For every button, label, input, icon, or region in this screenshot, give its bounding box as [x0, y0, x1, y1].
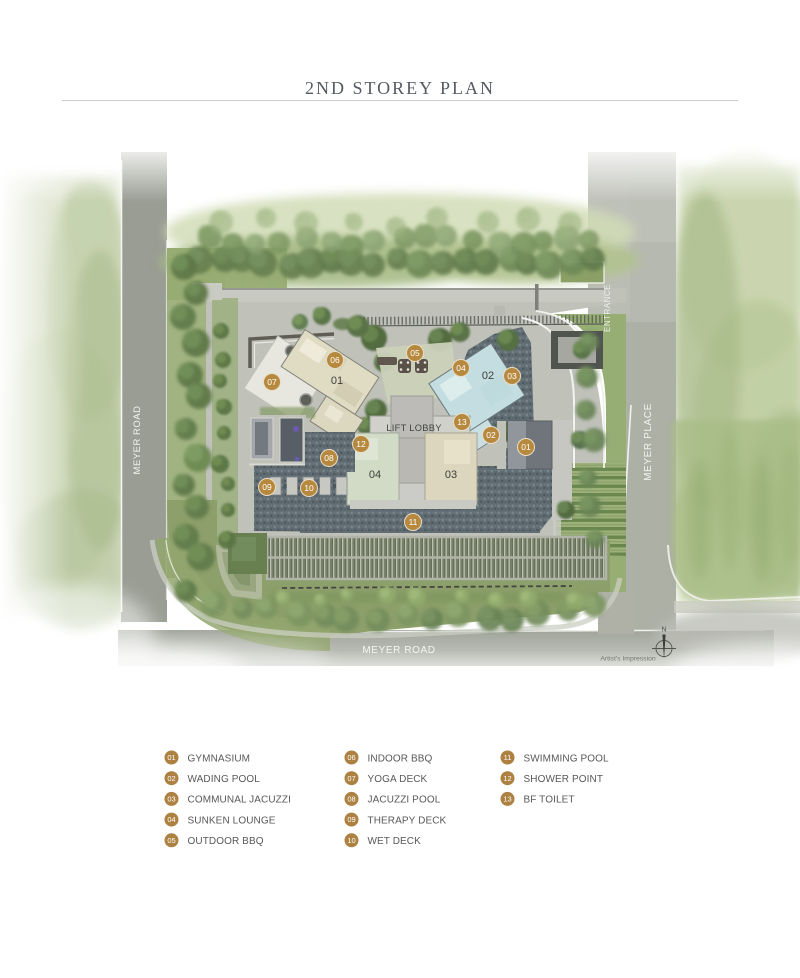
- svg-text:SUNKEN LOUNGE: SUNKEN LOUNGE: [188, 815, 276, 826]
- svg-text:01: 01: [167, 753, 175, 762]
- svg-text:10: 10: [347, 836, 355, 845]
- svg-text:09: 09: [347, 815, 355, 824]
- svg-text:02: 02: [486, 430, 496, 440]
- svg-text:13: 13: [503, 795, 511, 804]
- svg-text:LIFT LOBBY: LIFT LOBBY: [386, 423, 442, 433]
- svg-text:WET DECK: WET DECK: [368, 836, 422, 847]
- svg-text:MEYER PLACE: MEYER PLACE: [643, 403, 654, 481]
- svg-text:08: 08: [324, 453, 334, 463]
- svg-text:02: 02: [482, 370, 494, 382]
- svg-text:MEYER ROAD: MEYER ROAD: [362, 645, 435, 656]
- svg-text:ENTRANCE: ENTRANCE: [603, 284, 612, 332]
- svg-text:OUTDOOR BBQ: OUTDOOR BBQ: [188, 836, 264, 847]
- svg-text:COMMUNAL JACUZZI: COMMUNAL JACUZZI: [188, 795, 291, 806]
- svg-text:THERAPY DECK: THERAPY DECK: [368, 815, 447, 826]
- svg-text:SWIMMING POOL: SWIMMING POOL: [524, 753, 610, 764]
- svg-text:03: 03: [445, 469, 457, 481]
- svg-text:N: N: [661, 627, 666, 634]
- svg-text:11: 11: [504, 753, 512, 762]
- svg-text:02: 02: [167, 774, 175, 783]
- svg-text:01: 01: [521, 442, 531, 452]
- svg-text:13: 13: [457, 417, 467, 427]
- svg-text:BF TOILET: BF TOILET: [524, 795, 575, 806]
- svg-text:07: 07: [267, 377, 277, 387]
- svg-text:07: 07: [347, 774, 355, 783]
- svg-text:JACUZZI POOL: JACUZZI POOL: [368, 795, 441, 806]
- svg-text:03: 03: [167, 795, 175, 804]
- svg-text:05: 05: [410, 348, 420, 358]
- svg-text:10: 10: [304, 483, 314, 493]
- svg-text:SHOWER POINT: SHOWER POINT: [524, 774, 604, 785]
- svg-text:06: 06: [347, 753, 355, 762]
- svg-text:03: 03: [507, 371, 517, 381]
- svg-text:GYMNASIUM: GYMNASIUM: [188, 753, 251, 764]
- svg-text:06: 06: [330, 355, 340, 365]
- svg-text:08: 08: [347, 795, 355, 804]
- svg-text:MEYER ROAD: MEYER ROAD: [132, 406, 143, 475]
- svg-text:01: 01: [331, 375, 343, 387]
- svg-text:04: 04: [167, 815, 175, 824]
- svg-text:WADING POOL: WADING POOL: [188, 774, 261, 785]
- svg-text:05: 05: [167, 836, 175, 845]
- svg-text:12: 12: [503, 774, 511, 783]
- svg-text:12: 12: [356, 439, 366, 449]
- svg-text:09: 09: [262, 482, 272, 492]
- svg-text:INDOOR BBQ: INDOOR BBQ: [368, 753, 433, 764]
- svg-text:YOGA DECK: YOGA DECK: [368, 774, 428, 785]
- svg-text:04: 04: [369, 469, 381, 481]
- svg-text:11: 11: [409, 517, 418, 527]
- svg-text:04: 04: [456, 363, 466, 373]
- svg-text:Artist's Impression: Artist's Impression: [600, 656, 656, 663]
